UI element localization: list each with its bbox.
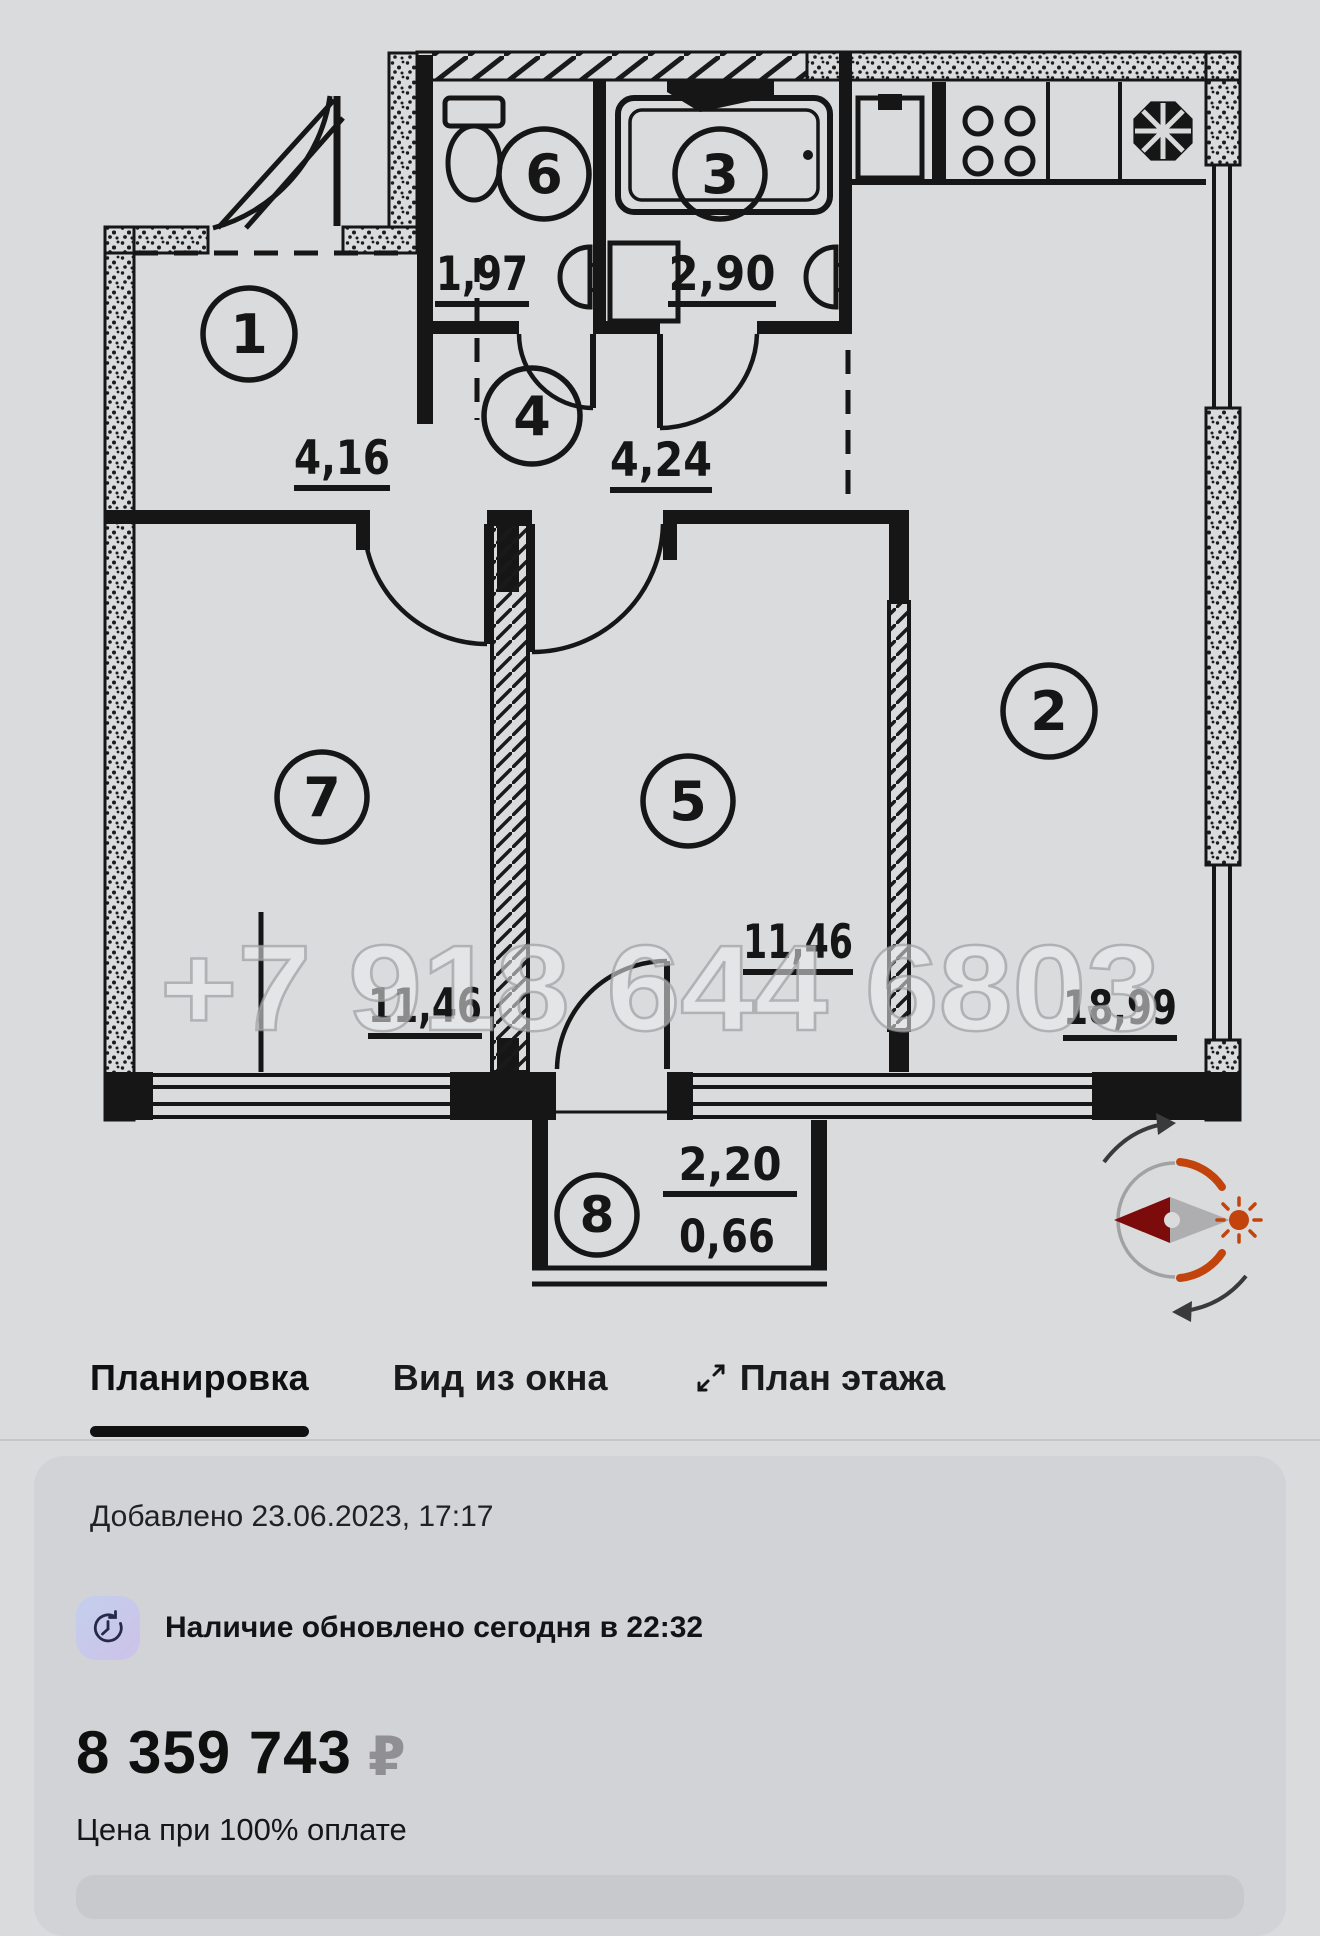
room-number: 8 <box>580 1186 615 1244</box>
bottom-wall <box>105 1072 1240 1120</box>
vent-fan-icon <box>1133 101 1192 160</box>
clock-refresh-icon <box>88 1608 128 1648</box>
entry-door <box>213 96 343 228</box>
availability-row: Наличие обновлено сегодня в 22:32 <box>76 1596 703 1660</box>
price-note: Цена при 100% оплате <box>76 1812 407 1848</box>
price-row: 8 359 743 ₽ <box>76 1718 406 1787</box>
tabs-divider <box>0 1439 1320 1441</box>
active-tab-underline <box>90 1426 309 1437</box>
room-number: 5 <box>669 770 707 833</box>
room-number: 3 <box>701 143 739 206</box>
listing-info-card: Добавлено 23.06.2023, 17:17 Наличие обно… <box>34 1456 1286 1936</box>
area-underlines <box>294 304 1177 1194</box>
room-area: 2,90 <box>669 247 776 302</box>
toilet-icon <box>445 98 503 200</box>
floorplan-svg: 1 2 3 4 5 6 7 8 4,16 18,99 2,90 4,24 11,… <box>0 0 1320 1330</box>
floorplan-image[interactable]: 1 2 3 4 5 6 7 8 4,16 18,99 2,90 4,24 11,… <box>0 0 1320 1330</box>
ruble-sign: ₽ <box>368 1727 406 1787</box>
room-area: 4,24 <box>610 433 712 488</box>
media-tabs: Планировка Вид из окна План этажа <box>0 1330 1320 1441</box>
vent-shaft <box>667 80 774 112</box>
tab-layout[interactable]: Планировка <box>90 1358 309 1437</box>
stove-icon <box>965 108 1033 174</box>
expand-arrows-icon <box>692 1359 730 1397</box>
compass-icon <box>1104 1113 1261 1322</box>
room-number: 4 <box>513 385 551 448</box>
tab-label: Планировка <box>90 1358 309 1398</box>
room-area: 4,16 <box>294 431 390 486</box>
room-area: 1,97 <box>436 247 528 302</box>
tab-floor-plan[interactable]: План этажа <box>692 1358 946 1398</box>
room-number: 2 <box>1030 680 1068 743</box>
room-number: 6 <box>525 143 563 206</box>
availability-text: Наличие обновлено сегодня в 22:32 <box>165 1611 703 1645</box>
room-area: 2,20 <box>679 1138 782 1191</box>
tab-label: Вид из окна <box>393 1358 608 1398</box>
added-date: Добавлено 23.06.2023, 17:17 <box>90 1498 493 1536</box>
room-number: 1 <box>230 303 268 366</box>
watermark-phone: +7 918 644 6803 <box>160 920 1160 1056</box>
price-value: 8 359 743 <box>76 1718 352 1787</box>
tab-window-view[interactable]: Вид из окна <box>393 1358 608 1398</box>
tab-label: План этажа <box>740 1358 946 1398</box>
room-area: 0,66 <box>679 1210 775 1263</box>
availability-badge <box>76 1596 140 1660</box>
balcony-window <box>532 1268 827 1284</box>
next-section-preview <box>76 1875 1244 1919</box>
room-number: 7 <box>303 766 341 829</box>
